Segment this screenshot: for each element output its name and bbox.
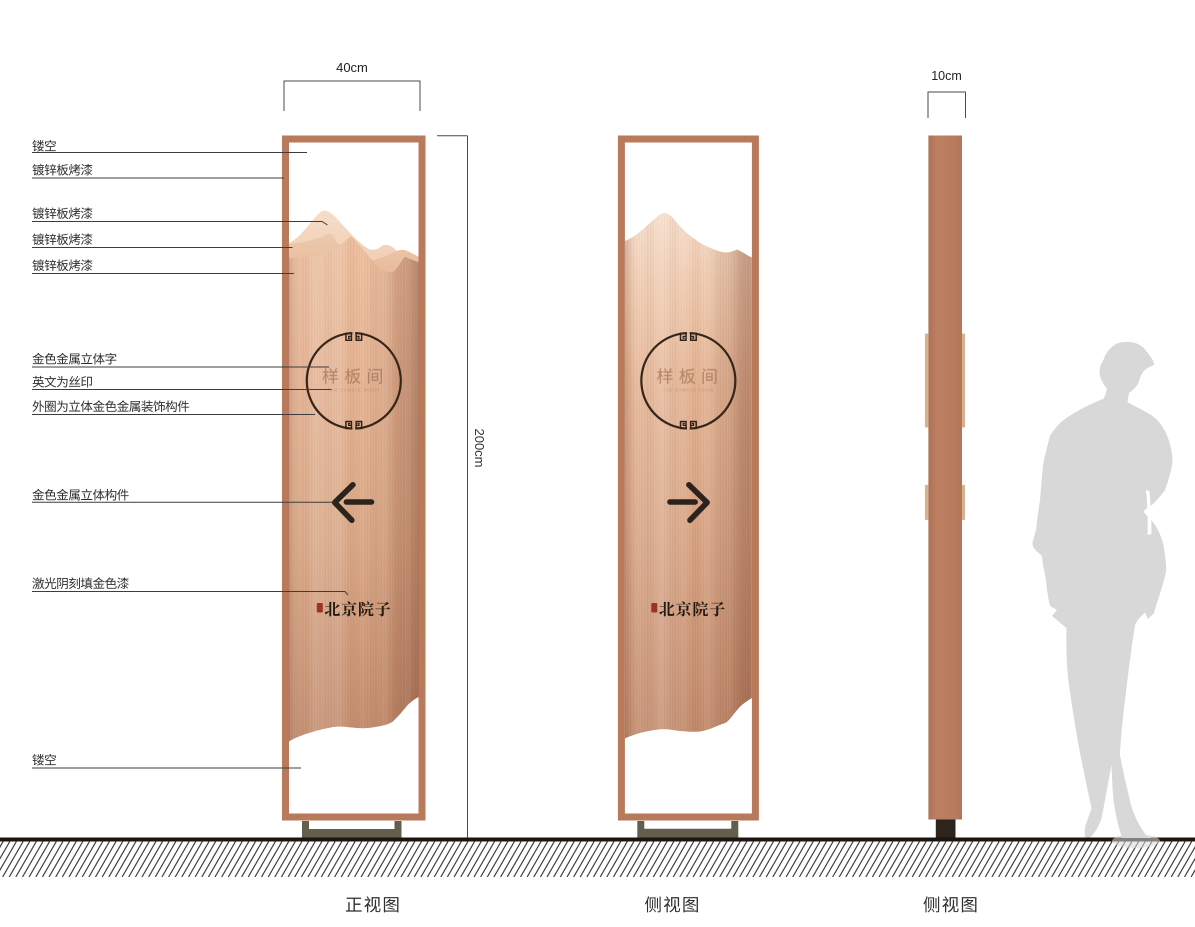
svg-text:THE SAMPLE ROOM: THE SAMPLE ROOM (663, 388, 714, 393)
svg-text:200cm: 200cm (472, 428, 487, 467)
svg-text:THE SAMPLE ROOM: THE SAMPLE ROOM (328, 388, 379, 393)
svg-text:10cm: 10cm (931, 69, 962, 83)
svg-text:40cm: 40cm (336, 60, 368, 75)
